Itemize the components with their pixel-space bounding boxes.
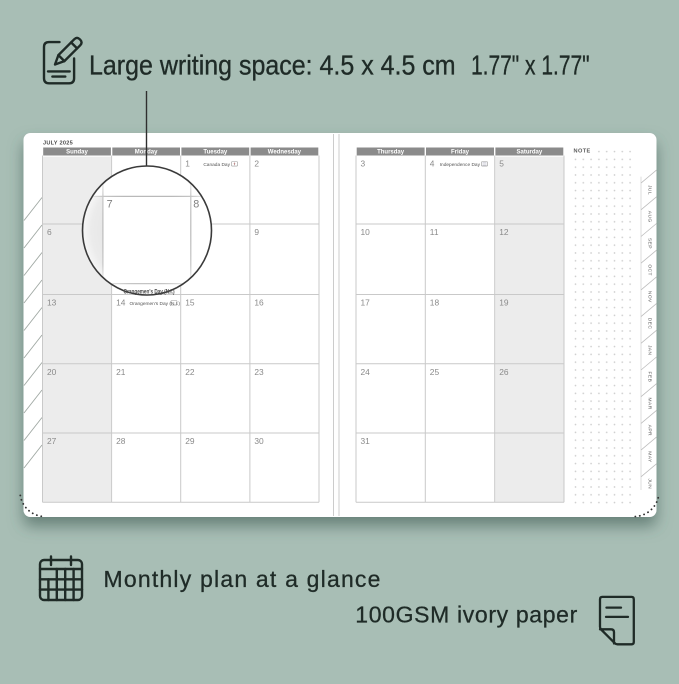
svg-text:Orangemen's Day (N.I.): Orangemen's Day (N.I.)	[130, 301, 181, 307]
svg-text:5: 5	[499, 159, 504, 169]
svg-text:15: 15	[185, 298, 195, 308]
svg-text:Saturday: Saturday	[517, 150, 543, 156]
svg-text:14: 14	[116, 298, 126, 308]
svg-text:12: 12	[499, 227, 509, 237]
svg-text:JUL: JUL	[647, 185, 653, 195]
svg-text:6: 6	[47, 227, 52, 237]
svg-text:27: 27	[47, 436, 57, 446]
svg-text:28: 28	[116, 436, 126, 446]
svg-text:19: 19	[499, 298, 509, 308]
svg-text:SEP: SEP	[647, 238, 653, 249]
svg-text:25: 25	[430, 367, 440, 377]
svg-text:Independence Day: Independence Day	[440, 162, 481, 168]
svg-text:26: 26	[499, 367, 509, 377]
svg-text:OCT: OCT	[647, 264, 653, 276]
svg-text:APR: APR	[647, 425, 653, 436]
svg-text:FEB: FEB	[647, 372, 653, 383]
svg-text:17: 17	[361, 298, 371, 308]
svg-text:1.77" x 1.77": 1.77" x 1.77"	[471, 50, 590, 81]
svg-text:1: 1	[185, 159, 190, 169]
svg-text:24: 24	[361, 367, 371, 377]
svg-text:7: 7	[107, 199, 113, 211]
svg-text:2: 2	[254, 159, 259, 169]
svg-text:Orangemen's Day (N.I.): Orangemen's Day (N.I.)	[124, 288, 175, 295]
svg-text:NOTE: NOTE	[574, 148, 591, 154]
svg-text:MAY: MAY	[647, 451, 653, 463]
svg-text:21: 21	[116, 367, 126, 377]
svg-text:Thursday: Thursday	[377, 150, 405, 156]
svg-text:8: 8	[193, 199, 199, 211]
svg-text:Canada Day: Canada Day	[203, 162, 230, 168]
svg-text:16: 16	[254, 298, 264, 308]
svg-text:3: 3	[361, 159, 366, 169]
svg-text:Sunday: Sunday	[66, 150, 88, 156]
svg-text:JUN: JUN	[647, 478, 653, 489]
svg-text:JAN: JAN	[647, 345, 653, 356]
svg-text:20: 20	[47, 367, 57, 377]
svg-text:AUG: AUG	[647, 211, 653, 223]
svg-text:29: 29	[185, 436, 195, 446]
svg-text:MAR: MAR	[647, 398, 653, 410]
svg-text:Friday: Friday	[451, 150, 470, 156]
svg-text:9: 9	[254, 227, 259, 237]
svg-text:18: 18	[430, 298, 440, 308]
svg-text:DEC: DEC	[647, 318, 653, 330]
svg-text:11: 11	[430, 227, 439, 237]
svg-text:Monthly plan at a glance: Monthly plan at a glance	[104, 566, 382, 592]
svg-text:Wednesday: Wednesday	[268, 150, 302, 156]
svg-text:22: 22	[185, 367, 195, 377]
svg-text:30: 30	[254, 436, 264, 446]
svg-text:Tuesday: Tuesday	[203, 150, 228, 156]
svg-text:23: 23	[254, 367, 264, 377]
svg-text:100GSM ivory paper: 100GSM ivory paper	[355, 602, 578, 628]
svg-text:NOV: NOV	[647, 291, 653, 303]
svg-text:JULY 2025: JULY 2025	[43, 140, 73, 146]
svg-text:4: 4	[430, 159, 435, 169]
svg-text:10: 10	[361, 227, 371, 237]
svg-text:31: 31	[361, 436, 371, 446]
svg-text:Large writing space: 4.5 x 4.5: Large writing space: 4.5 x 4.5 cm	[89, 50, 456, 81]
svg-text:13: 13	[47, 298, 57, 308]
